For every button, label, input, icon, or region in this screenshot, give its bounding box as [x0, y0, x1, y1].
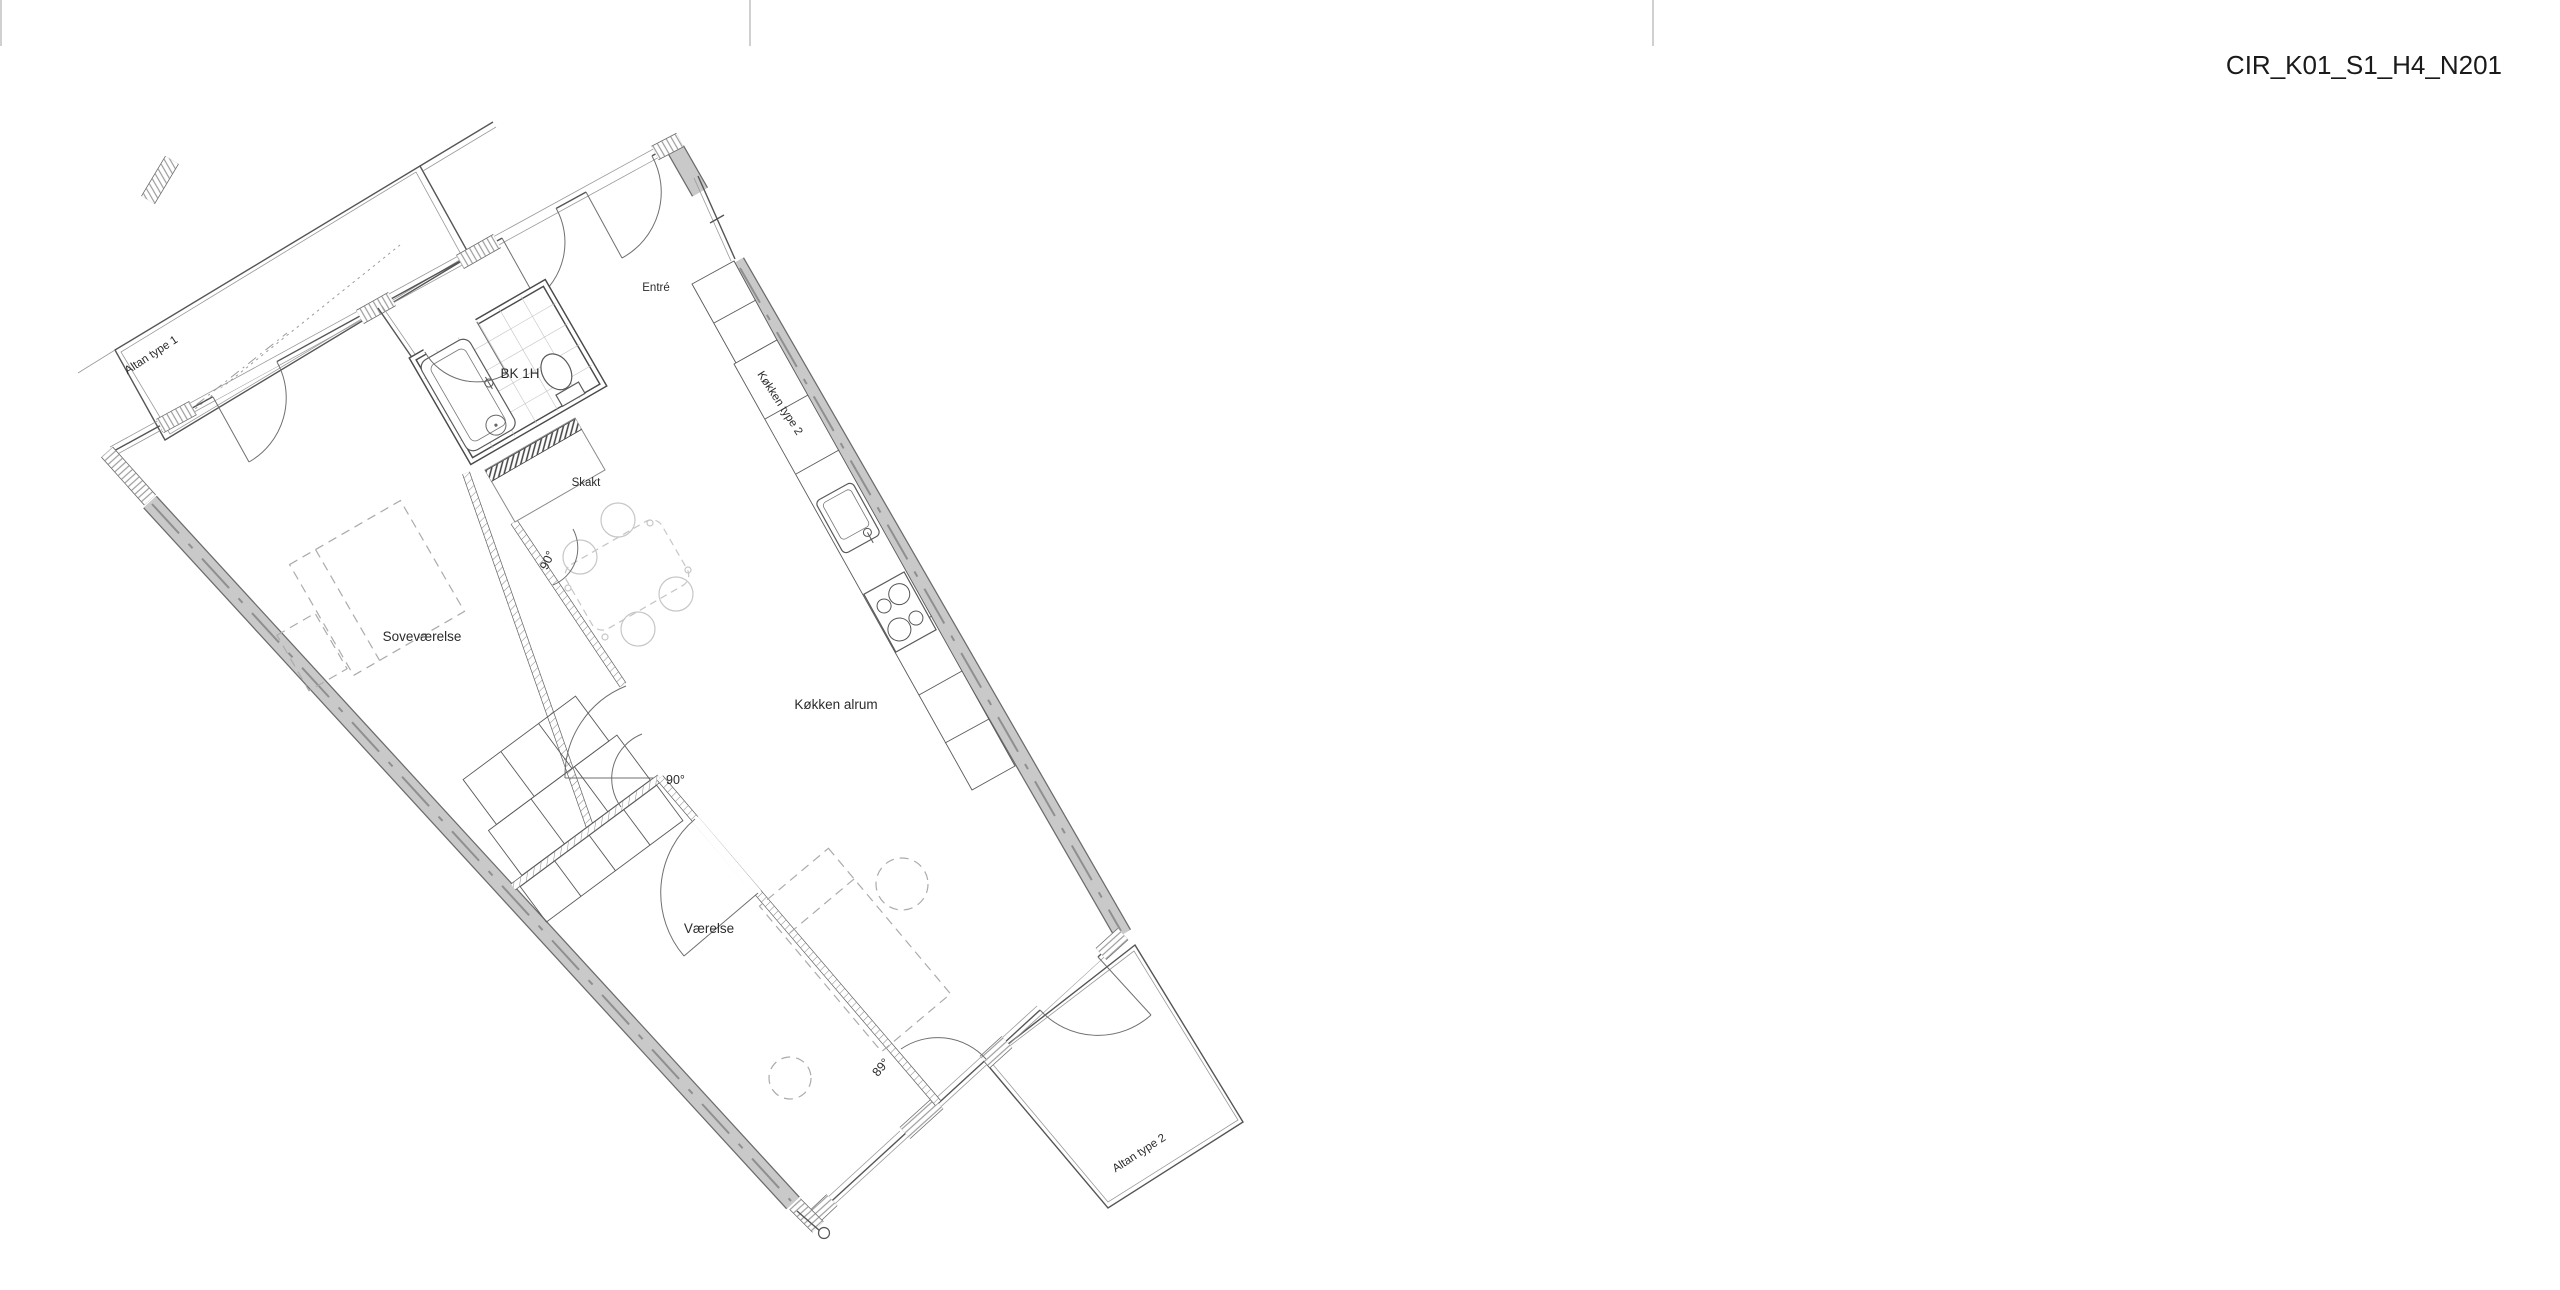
balcony-divider [148, 160, 172, 200]
angle-label-2: 90° [666, 773, 685, 787]
floor-plan-canvas: Altan type 1 Altan type 2 [0, 0, 2560, 1290]
balcony1-door-bedroom [213, 362, 286, 462]
room-label-kokken-alrum: Køkken alrum [794, 697, 877, 712]
room-label-sovevaerelse: Soveværelse [383, 629, 462, 644]
room-label-entre: Entré [642, 282, 670, 294]
vaerelse-wall [660, 778, 938, 1103]
drawing-title: CIR_K01_S1_H4_N201 [2226, 50, 2502, 80]
entrance-door [586, 156, 661, 258]
bed-sovevaerelse [290, 501, 465, 676]
room-label-bk1h: BK 1H [500, 366, 539, 381]
page-frame-ticks [1, 0, 1653, 46]
corner-column [819, 1228, 830, 1239]
room-label-vaerelse: Værelse [684, 921, 734, 936]
page: { "page": { "title": "CIR_K01_S1_H4_N201… [0, 0, 2560, 1290]
exterior-doors [213, 156, 1151, 1035]
exterior-walls [107, 140, 1126, 1239]
angle-label-1: 90° [537, 549, 558, 572]
wardrobe-partition [444, 685, 689, 926]
balcony-2: Altan type 2 [985, 945, 1243, 1208]
wardrobe-room-side [520, 785, 683, 922]
interior-walls [378, 283, 938, 1103]
angle-label-3: 89° [869, 1056, 892, 1079]
balcony2-door [1040, 957, 1151, 1035]
chair-vaerelse-2 [769, 1057, 811, 1099]
chair-vaerelse-1 [876, 858, 928, 910]
balcony1-door-entre [502, 208, 565, 299]
room-label-altan2: Altan type 2 [1111, 1132, 1168, 1175]
bed-vaerelse [759, 848, 950, 1051]
bedroom-wall [466, 473, 591, 830]
room-label-skakt: Skakt [572, 477, 602, 489]
living-room-door [565, 686, 660, 778]
masonry-piers-top [107, 140, 680, 500]
